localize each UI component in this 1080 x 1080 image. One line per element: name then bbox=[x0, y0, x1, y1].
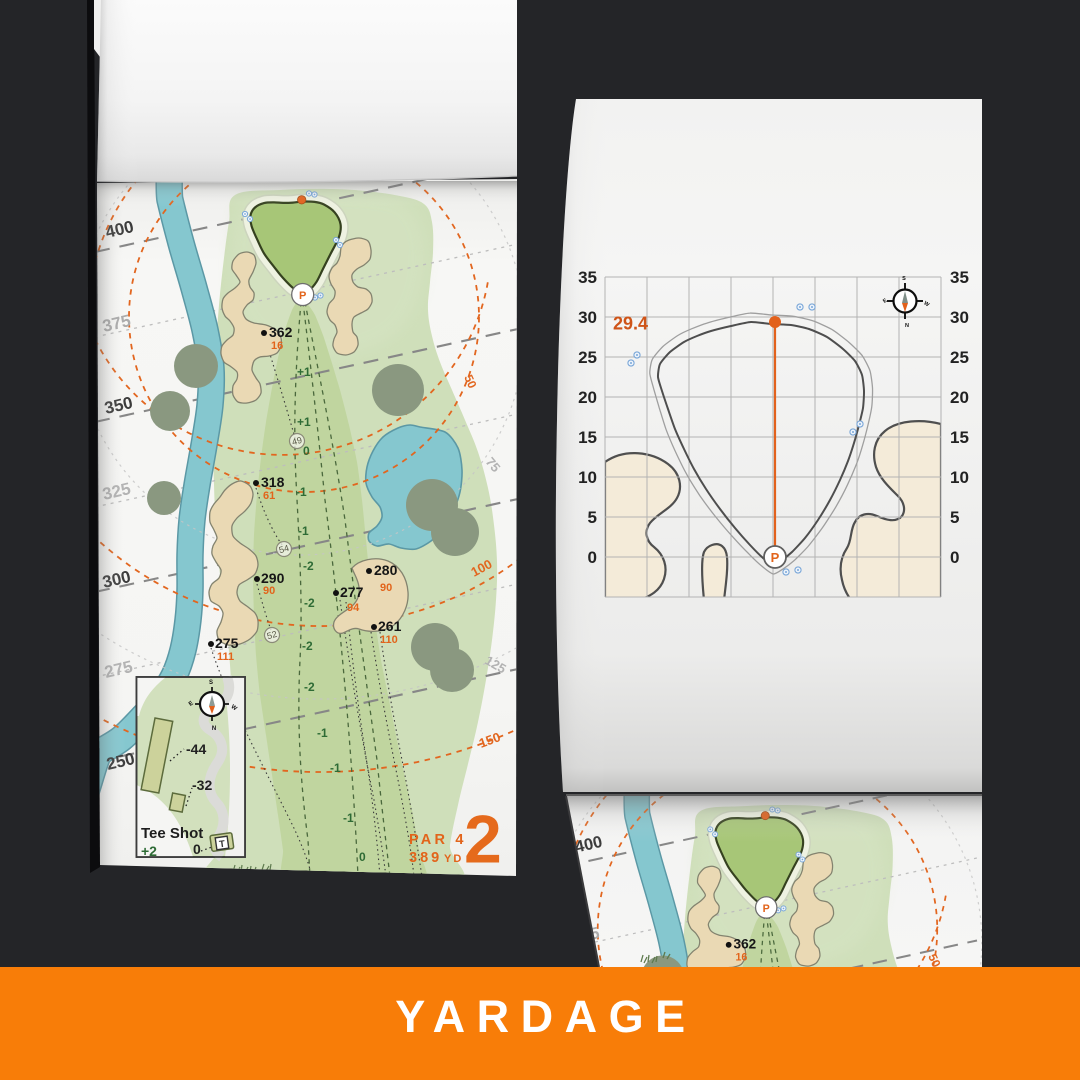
svg-text:N: N bbox=[212, 726, 216, 732]
svg-text:-1: -1 bbox=[317, 726, 328, 740]
svg-text:0: 0 bbox=[950, 548, 959, 567]
svg-text:30: 30 bbox=[578, 308, 597, 327]
svg-text:0: 0 bbox=[193, 841, 201, 857]
svg-text:YARDAGE: YARDAGE bbox=[395, 991, 696, 1042]
svg-text:-2: -2 bbox=[304, 680, 315, 694]
svg-text:10: 10 bbox=[578, 468, 597, 487]
svg-text:20: 20 bbox=[950, 388, 969, 407]
svg-text:35: 35 bbox=[950, 268, 969, 287]
svg-text:0: 0 bbox=[359, 850, 366, 864]
svg-text:15: 15 bbox=[950, 428, 969, 447]
svg-text:94: 94 bbox=[347, 602, 360, 614]
svg-text:Tee Shot: Tee Shot bbox=[141, 825, 203, 842]
svg-text:N: N bbox=[905, 323, 909, 329]
svg-text:261: 261 bbox=[378, 618, 402, 634]
svg-text:90: 90 bbox=[380, 582, 392, 594]
svg-text:280: 280 bbox=[374, 562, 398, 578]
svg-text:111: 111 bbox=[217, 651, 234, 663]
svg-text:+2: +2 bbox=[141, 843, 157, 859]
svg-text:-2: -2 bbox=[304, 596, 315, 610]
svg-text:5: 5 bbox=[588, 508, 597, 527]
svg-text:0: 0 bbox=[588, 548, 597, 567]
svg-text:+1: +1 bbox=[297, 365, 311, 379]
svg-text:-1: -1 bbox=[296, 485, 307, 499]
svg-text:S: S bbox=[902, 276, 906, 282]
svg-text:29.4: 29.4 bbox=[613, 314, 648, 334]
svg-text:YD: YD bbox=[444, 853, 463, 865]
svg-text:61: 61 bbox=[263, 490, 275, 502]
svg-text:25: 25 bbox=[578, 348, 597, 367]
svg-text:5: 5 bbox=[950, 508, 959, 527]
svg-text:S: S bbox=[209, 680, 213, 686]
svg-text:P: P bbox=[299, 290, 306, 302]
svg-text:-1: -1 bbox=[330, 761, 341, 775]
svg-text:16: 16 bbox=[271, 340, 283, 352]
svg-text:362: 362 bbox=[269, 324, 293, 340]
svg-text:-1: -1 bbox=[298, 524, 309, 538]
svg-text:-1: -1 bbox=[343, 811, 354, 825]
svg-text:35: 35 bbox=[578, 268, 597, 287]
svg-text:-2: -2 bbox=[302, 639, 313, 653]
svg-text:-32: -32 bbox=[192, 777, 212, 793]
svg-text:2: 2 bbox=[464, 802, 502, 878]
svg-text:PAR 4: PAR 4 bbox=[409, 832, 467, 848]
svg-text:30: 30 bbox=[950, 308, 969, 327]
svg-text:110: 110 bbox=[380, 634, 398, 646]
svg-text:275: 275 bbox=[215, 635, 239, 651]
svg-text:290: 290 bbox=[261, 570, 285, 586]
svg-text:15: 15 bbox=[578, 428, 597, 447]
svg-text:90: 90 bbox=[263, 585, 275, 597]
svg-text:10: 10 bbox=[950, 468, 969, 487]
svg-text:P: P bbox=[771, 550, 780, 565]
svg-text:-2: -2 bbox=[303, 559, 314, 573]
svg-text:389: 389 bbox=[409, 850, 442, 866]
svg-text:318: 318 bbox=[261, 474, 285, 490]
svg-text:-44: -44 bbox=[186, 741, 206, 757]
svg-text:277: 277 bbox=[340, 584, 364, 600]
svg-text:0: 0 bbox=[303, 444, 310, 458]
svg-text:25: 25 bbox=[950, 348, 969, 367]
svg-text:+1: +1 bbox=[297, 415, 311, 429]
svg-text:20: 20 bbox=[578, 388, 597, 407]
